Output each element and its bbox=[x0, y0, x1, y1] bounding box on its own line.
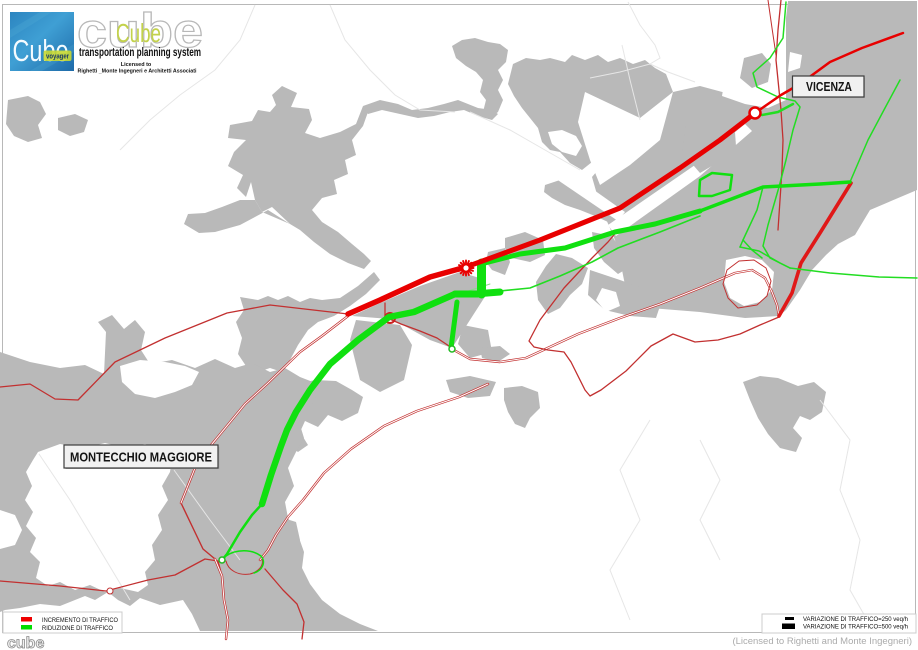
svg-text:transportation planning system: transportation planning system bbox=[79, 47, 201, 59]
svg-text:INCREMENTO DI TRAFFICO: INCREMENTO DI TRAFFICO bbox=[42, 617, 118, 624]
svg-text:cube: cube bbox=[7, 635, 44, 650]
svg-text:voyager: voyager bbox=[46, 52, 69, 61]
svg-text:Righetti _Monte Ingegneri e Ar: Righetti _Monte Ingegneri e Architetti A… bbox=[78, 69, 197, 75]
svg-text:MONTECCHIO MAGGIORE: MONTECCHIO MAGGIORE bbox=[70, 450, 212, 465]
svg-text:VARIAZIONE DI TRAFFICO=250 veq: VARIAZIONE DI TRAFFICO=250 veq/h bbox=[803, 617, 908, 623]
svg-text:RIDUZIONE DI TRAFFICO: RIDUZIONE DI TRAFFICO bbox=[42, 625, 113, 632]
svg-text:VARIAZIONE DI TRAFFICO=500 veq: VARIAZIONE DI TRAFFICO=500 veq/h bbox=[803, 625, 908, 631]
svg-text:Licensed to: Licensed to bbox=[121, 62, 152, 68]
svg-text:Cube: Cube bbox=[116, 18, 161, 48]
svg-text:(Licensed to Righetti and Mont: (Licensed to Righetti and Monte Ingegner… bbox=[732, 636, 912, 647]
svg-text:VICENZA: VICENZA bbox=[806, 79, 852, 94]
